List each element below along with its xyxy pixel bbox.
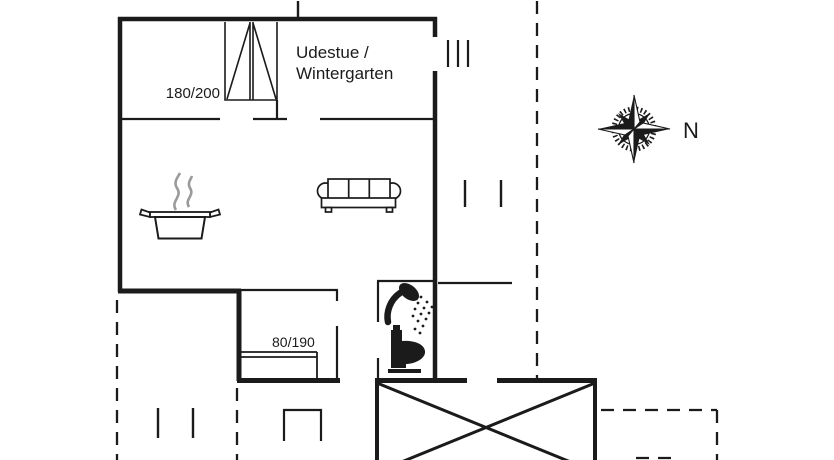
room-label: Udestue / Wintergarten bbox=[296, 42, 393, 84]
shower-spray-dots bbox=[412, 296, 434, 335]
post-marks bbox=[158, 180, 501, 438]
sofa-icon bbox=[318, 179, 401, 212]
terrace-outline bbox=[372, 381, 600, 460]
compass-north-label: N bbox=[683, 118, 699, 144]
floor-plan: Udestue / Wintergarten 180/200 80/190 N bbox=[0, 0, 834, 460]
bed-dimension-label: 80/190 bbox=[272, 334, 315, 350]
window-dimension-label: 180/200 bbox=[150, 85, 220, 102]
alcove-outline bbox=[284, 410, 321, 441]
window-icon bbox=[225, 22, 277, 100]
interior-walls bbox=[120, 100, 512, 380]
compass-rose-icon bbox=[598, 95, 670, 163]
bed-icon bbox=[241, 352, 317, 379]
entrance-steps-icon bbox=[448, 40, 468, 67]
property-boundary-dashed bbox=[117, 1, 717, 460]
cooking-pot-icon bbox=[140, 173, 220, 239]
